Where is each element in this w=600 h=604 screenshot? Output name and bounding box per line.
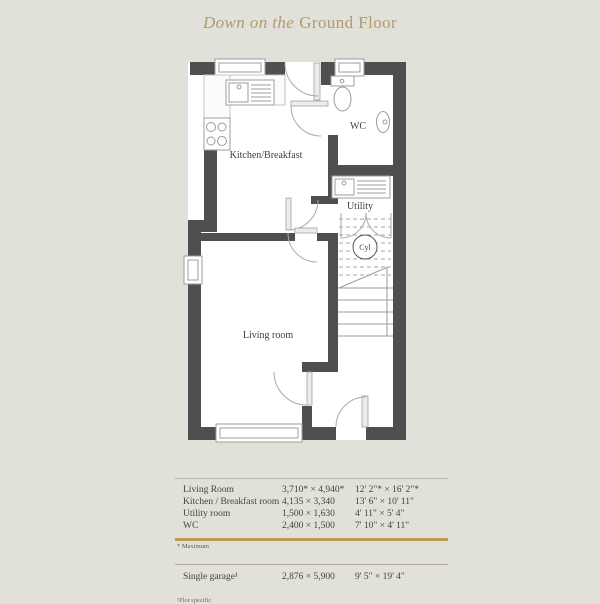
table-row: Utility room 1,500 × 1,630 4' 11" × 5' 4… bbox=[183, 508, 448, 520]
garage-name: Single garage¹ bbox=[183, 571, 282, 583]
table-row: Kitchen / Breakfast room 4,135 × 3,340 1… bbox=[183, 496, 448, 508]
table-row: WC 2,400 × 1,500 7' 10" × 4' 11" bbox=[183, 520, 448, 532]
plot-specific-footnote: ¹Plot specific bbox=[175, 583, 448, 604]
utility-label: Utility bbox=[347, 201, 373, 212]
kitchen-window bbox=[215, 59, 265, 76]
cylinder-label: Cyl bbox=[359, 243, 371, 252]
room-name: Kitchen / Breakfast room bbox=[183, 496, 282, 508]
garage-imperial: 9' 5" × 19' 4" bbox=[355, 571, 448, 583]
room-name: Utility room bbox=[183, 508, 282, 520]
dimensions-table: Living Room 3,710* × 4,940* 12' 2"* × 16… bbox=[175, 478, 448, 604]
wc-window bbox=[335, 59, 364, 76]
basin bbox=[377, 112, 390, 133]
living-front-window bbox=[216, 424, 302, 442]
maximum-footnote: * Maximum bbox=[175, 541, 448, 550]
living-room-label: Living room bbox=[243, 330, 293, 341]
hob bbox=[204, 118, 230, 150]
room-metric: 4,135 × 3,340 bbox=[282, 496, 355, 508]
room-metric: 1,500 × 1,630 bbox=[282, 508, 355, 520]
table-row: Living Room 3,710* × 4,940* 12' 2"* × 16… bbox=[183, 484, 448, 496]
living-side-window bbox=[184, 256, 202, 284]
room-imperial: 4' 11" × 5' 4" bbox=[355, 508, 448, 520]
room-imperial: 12' 2"* × 16' 2"* bbox=[355, 484, 448, 496]
room-metric: 2,400 × 1,500 bbox=[282, 520, 355, 532]
kitchen-sink bbox=[226, 80, 274, 105]
room-name: Living Room bbox=[183, 484, 282, 496]
garage-row: Single garage¹ 2,876 × 5,900 9' 5" × 19'… bbox=[183, 571, 448, 583]
room-dimension-rows: Living Room 3,710* × 4,940* 12' 2"* × 16… bbox=[175, 479, 448, 536]
garage-metric: 2,876 × 5,900 bbox=[282, 571, 355, 583]
wc-label: WC bbox=[350, 121, 366, 132]
room-imperial: 7' 10" × 4' 11" bbox=[355, 520, 448, 532]
room-name: WC bbox=[183, 520, 282, 532]
utility-sink bbox=[332, 176, 390, 198]
room-imperial: 13' 6" × 10' 11" bbox=[355, 496, 448, 508]
room-metric: 3,710* × 4,940* bbox=[282, 484, 355, 496]
kitchen-label: Kitchen/Breakfast bbox=[230, 150, 303, 161]
